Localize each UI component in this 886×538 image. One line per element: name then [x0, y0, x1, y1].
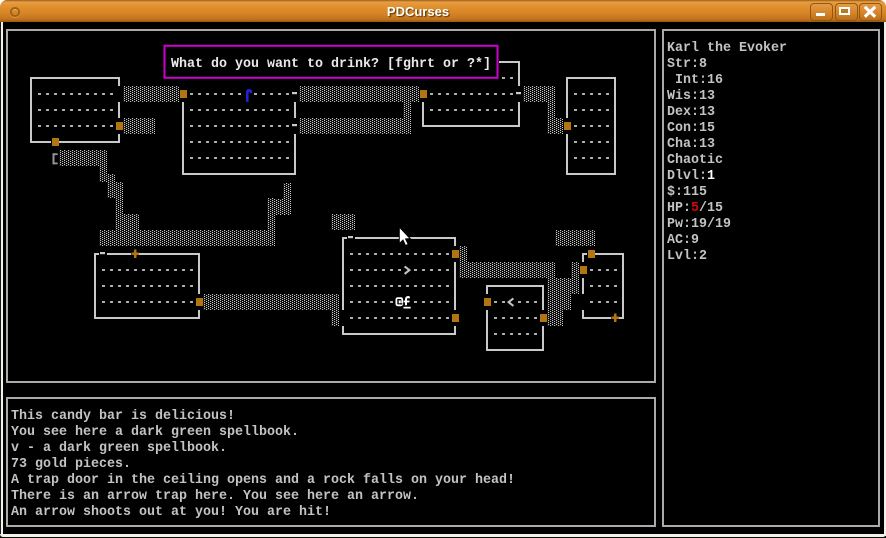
- svg-text:You see here a dark green spel: You see here a dark green spellbook.: [11, 424, 299, 440]
- svg-text:Str:8: Str:8: [667, 56, 707, 72]
- svg-text:Lvl:2: Lvl:2: [667, 248, 707, 264]
- svg-text:Pw:19/19: Pw:19/19: [667, 216, 731, 232]
- svg-text:Int:16: Int:16: [667, 72, 723, 88]
- svg-text:HP:: HP:: [667, 200, 691, 216]
- svg-text:$:115: $:115: [667, 184, 707, 200]
- svg-text:v - a dark green spellbook.: v - a dark green spellbook.: [11, 440, 227, 456]
- svg-text:Con:15: Con:15: [667, 120, 715, 136]
- svg-text:5: 5: [691, 200, 699, 216]
- svg-text:Karl the Evoker: Karl the Evoker: [667, 40, 787, 56]
- svg-text:Dex:13: Dex:13: [667, 104, 715, 120]
- svg-text:Wis:13: Wis:13: [667, 88, 715, 104]
- svg-text:/15: /15: [699, 200, 723, 216]
- svg-text:There is an arrow trap here. Y: There is an arrow trap here. You see her…: [11, 488, 419, 504]
- svg-text:This candy bar is delicious!: This candy bar is delicious!: [11, 408, 235, 424]
- svg-text:Dlvl:: Dlvl:: [667, 168, 707, 184]
- svg-text:73 gold pieces.: 73 gold pieces.: [11, 456, 131, 472]
- svg-text:An arrow shoots out at you! Yo: An arrow shoots out at you! You are hit!: [11, 504, 331, 520]
- svg-text:A trap door in the ceiling ope: A trap door in the ceiling opens and a r…: [11, 472, 515, 488]
- svg-text:AC:9: AC:9: [667, 232, 699, 248]
- svg-text:Chaotic: Chaotic: [667, 152, 723, 168]
- svg-text:1: 1: [707, 168, 715, 184]
- svg-text:What do you want to drink? [fg: What do you want to drink? [fghrt or ?*]: [171, 56, 491, 72]
- svg-text:Cha:13: Cha:13: [667, 136, 715, 152]
